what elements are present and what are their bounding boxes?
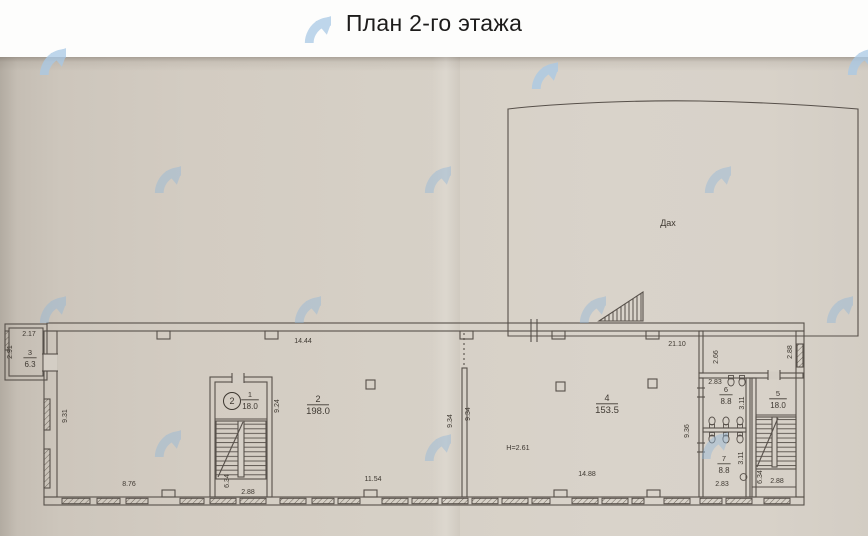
column xyxy=(556,382,565,391)
room-number-label: 5 xyxy=(776,389,780,398)
window-hatch xyxy=(382,498,408,503)
column xyxy=(648,379,657,388)
room-area-label: 8.8 xyxy=(718,466,730,475)
dimension-label: 9.24 xyxy=(274,399,281,413)
window-hatch xyxy=(280,498,306,503)
dimension-label: 9.34 xyxy=(447,414,454,428)
window-hatch xyxy=(700,498,722,503)
window-hatch xyxy=(532,498,550,503)
dimension-label: 6.34 xyxy=(224,474,231,488)
window-hatch xyxy=(44,399,50,430)
room-number-label: 3 xyxy=(28,348,32,357)
window-hatch xyxy=(312,498,334,503)
column xyxy=(366,380,375,389)
room-number-label: 1 xyxy=(248,390,252,399)
dimension-label: 2.88 xyxy=(241,489,255,496)
dimension-label: 8.76 xyxy=(122,481,136,488)
dimension-label: 2.83 xyxy=(715,481,729,488)
window-hatch xyxy=(472,498,498,503)
room-number-label: 4 xyxy=(604,393,609,403)
window-hatch xyxy=(338,498,360,503)
window-hatch xyxy=(210,498,236,503)
dimension-label: 21.10 xyxy=(668,341,686,348)
top-wall xyxy=(47,323,804,331)
floor-plan-drawing: 2.1714.4421.108.762.8811.5414.882.832.83… xyxy=(0,0,868,536)
window-hatch xyxy=(664,498,690,503)
room-number-label: 7 xyxy=(722,454,726,463)
window-hatch xyxy=(632,498,644,503)
room-area-label: 18.0 xyxy=(770,401,786,410)
roof-ladder-hatch xyxy=(599,292,643,321)
plan-labels: 2.1714.4421.108.762.8811.5414.882.832.83… xyxy=(7,218,794,496)
central-partition xyxy=(462,368,467,497)
dimension-label: 2.66 xyxy=(713,350,720,364)
window-hatch xyxy=(602,498,628,503)
window-hatch xyxy=(572,498,598,503)
window-hatch xyxy=(126,498,148,503)
dimension-label: 2.88 xyxy=(787,345,794,359)
bottom-wall-windows xyxy=(62,498,790,503)
window-hatch xyxy=(44,449,50,488)
dimension-label: 3.11 xyxy=(739,396,746,409)
roof-label: Дах xyxy=(660,218,676,228)
room-area-label: 6.3 xyxy=(24,360,36,369)
window-hatch xyxy=(764,498,790,503)
stairwell-1 xyxy=(210,373,272,497)
dimension-label: 14.44 xyxy=(294,338,312,345)
dimension-label: 2.17 xyxy=(22,331,36,338)
window-hatch xyxy=(412,498,438,503)
stair-marker-number: 2 xyxy=(229,396,234,406)
window-hatch xyxy=(442,498,468,503)
dimension-label: 9.34 xyxy=(465,407,472,421)
dimension-label: 11.54 xyxy=(365,476,382,483)
roof-outline xyxy=(508,101,858,342)
window-hatch xyxy=(797,344,803,367)
dimension-label: 2.91 xyxy=(7,345,14,359)
window-hatch xyxy=(62,498,90,503)
dimension-label: 9.36 xyxy=(684,424,691,438)
dimension-label: 9.31 xyxy=(62,409,69,423)
dimension-label: 2.83 xyxy=(708,379,722,386)
room-number-label: 2 xyxy=(315,394,320,404)
screenshot-root: План 2-го этажа xyxy=(0,0,868,536)
room-area-label: 153.5 xyxy=(595,405,619,416)
room-area-label: 18.0 xyxy=(242,402,258,411)
dimension-label: 6.34 xyxy=(757,470,764,484)
room-number-label: 6 xyxy=(724,385,728,394)
dimension-label: 3.11 xyxy=(738,451,745,464)
window-hatch xyxy=(726,498,752,503)
window-hatch xyxy=(97,498,120,503)
room-area-label: 198.0 xyxy=(306,406,330,417)
dimension-label: 2.88 xyxy=(770,478,784,485)
dimension-label: 14.88 xyxy=(578,471,596,478)
window-hatch xyxy=(180,498,204,503)
window-hatch xyxy=(240,498,266,503)
room-area-label: 8.8 xyxy=(720,397,732,406)
building-walls xyxy=(5,323,804,505)
window-hatch xyxy=(502,498,528,503)
height-note-label: H=2.61 xyxy=(506,443,529,452)
